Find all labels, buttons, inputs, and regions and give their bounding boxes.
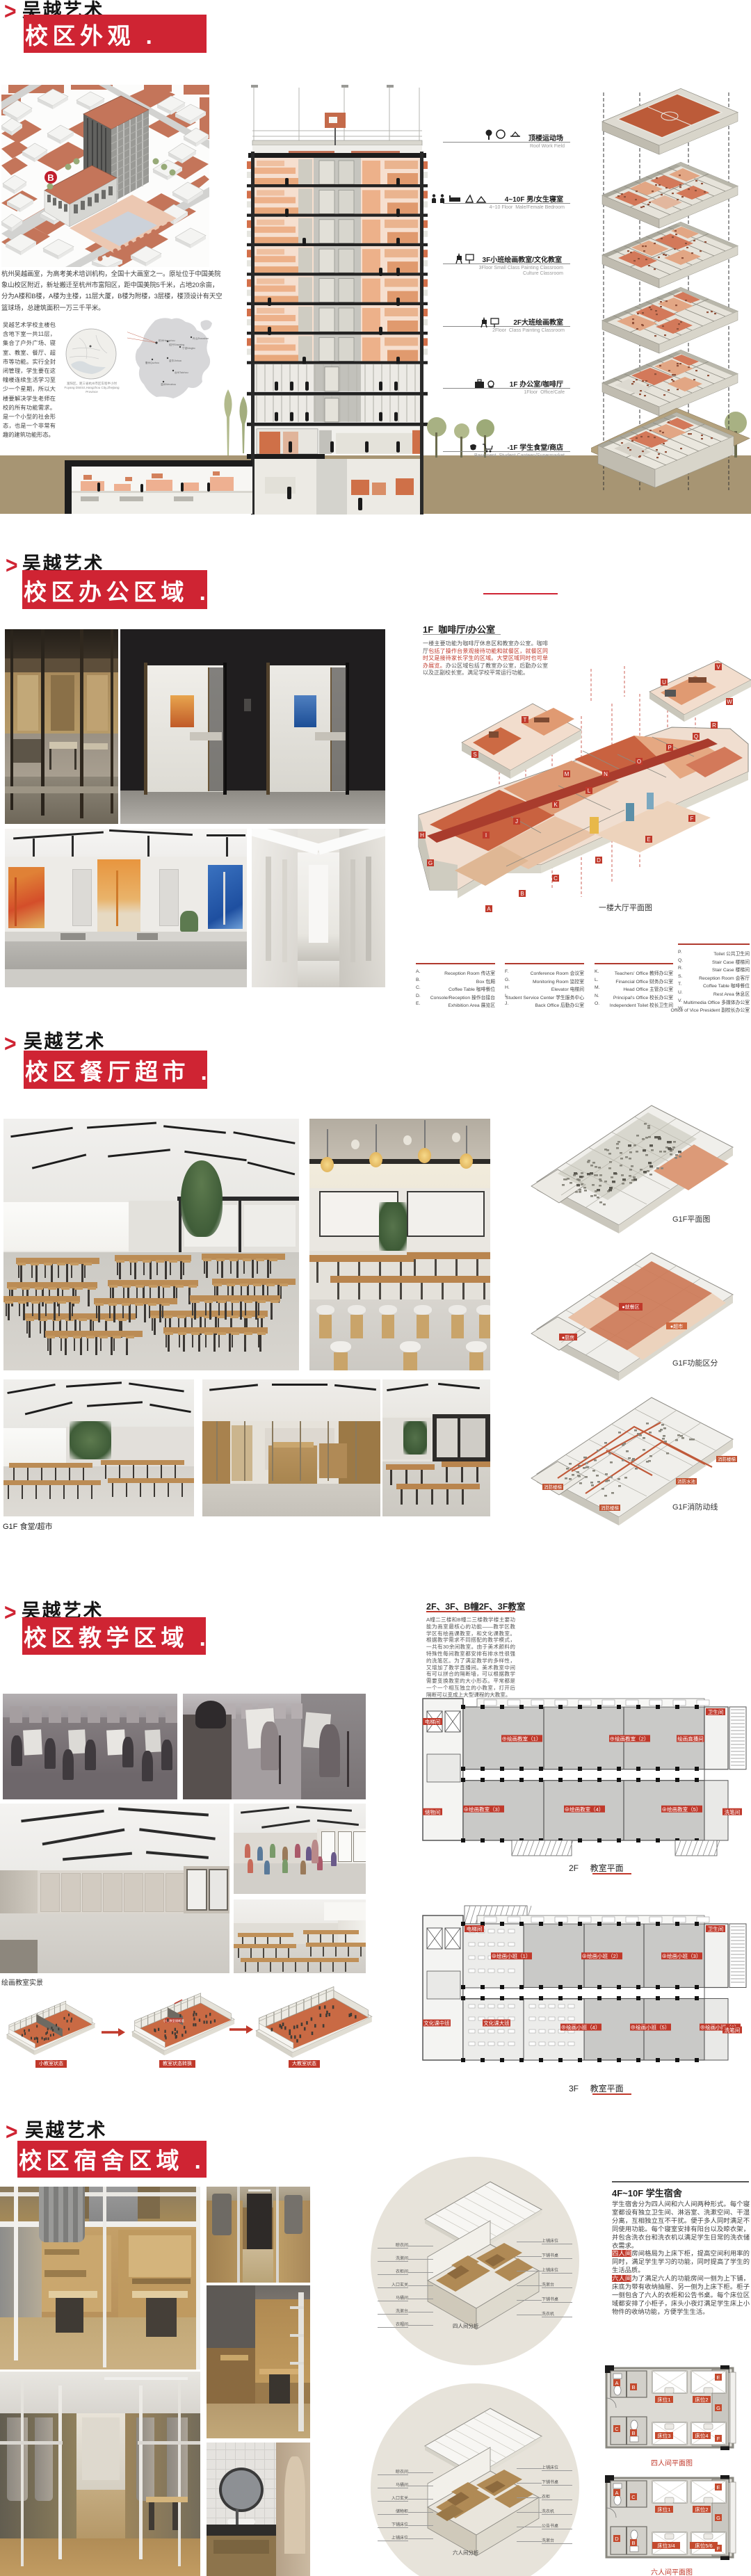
svg-text:文化课大班: 文化课大班 — [483, 2020, 510, 2027]
svg-text:F: F — [717, 2436, 720, 2442]
svg-text:金华Jinhua: 金华Jinhua — [169, 359, 181, 362]
svg-text:B: B — [47, 172, 54, 183]
svg-text:G: G — [716, 2405, 720, 2411]
svg-text:D: D — [615, 2536, 619, 2542]
svg-text:E: E — [716, 2374, 720, 2381]
svg-text:消防楼梯: 消防楼梯 — [544, 1484, 563, 1490]
svg-text:C: C — [554, 875, 558, 882]
svg-text:⊕绘画教室（3）: ⊕绘画教室（3） — [464, 1806, 503, 1813]
svg-text:C: C — [631, 2494, 636, 2500]
svg-text:床位3: 床位3 — [657, 2432, 670, 2439]
svg-text:N: N — [604, 771, 608, 777]
svg-text:⊕绘画小班（3）: ⊕绘画小班（3） — [662, 1952, 702, 1959]
svg-text:台州Taizhou: 台州Taizhou — [175, 371, 188, 374]
svg-text:⊕绘画教室（2）: ⊕绘画教室（2） — [610, 1735, 649, 1742]
svg-text:G: G — [716, 2515, 720, 2521]
svg-text:床位1: 床位1 — [657, 2396, 670, 2403]
svg-text:储物间: 储物间 — [425, 1808, 441, 1815]
svg-text:衢州Quzhou: 衢州Quzhou — [145, 361, 159, 364]
svg-text:T: T — [524, 717, 527, 723]
svg-text:⊕绘画教室（5）: ⊕绘画教室（5） — [662, 1806, 702, 1813]
svg-text:C: C — [615, 2426, 619, 2432]
svg-text:卫生间: 卫生间 — [708, 1925, 724, 1932]
svg-text:消防楼梯: 消防楼梯 — [601, 1505, 620, 1511]
svg-text:D: D — [597, 857, 601, 864]
svg-text:J: J — [515, 818, 518, 825]
svg-text:Q: Q — [694, 734, 698, 740]
svg-text:宁波Ningbo: 宁波Ningbo — [182, 346, 195, 350]
svg-text:卫生间: 卫生间 — [708, 1708, 724, 1715]
svg-text:W: W — [727, 699, 732, 705]
svg-text:文化课中班: 文化课中班 — [423, 2020, 450, 2027]
svg-text:⊕绘画教室（1）: ⊕绘画教室（1） — [502, 1735, 542, 1742]
svg-text:L: L — [588, 788, 591, 794]
svg-text:A: A — [487, 906, 491, 912]
svg-text:⊕绘画小班（2）: ⊕绘画小班（2） — [582, 1952, 622, 1959]
svg-text:E: E — [647, 836, 650, 843]
svg-text:S: S — [473, 752, 476, 758]
svg-text:床位4: 床位4 — [695, 2432, 708, 2439]
svg-text:消防水池: 消防水池 — [677, 1478, 696, 1484]
svg-text:B: B — [520, 891, 524, 897]
svg-text:M: M — [565, 771, 570, 777]
svg-text:R: R — [712, 722, 716, 729]
svg-text:B: B — [631, 2540, 635, 2546]
svg-text:洗笔间: 洗笔间 — [725, 1808, 741, 1815]
svg-text:F: F — [691, 816, 694, 822]
svg-text:洗笔间: 洗笔间 — [725, 2027, 741, 2034]
svg-text:H: H — [420, 832, 424, 839]
svg-text:E: E — [716, 2484, 720, 2490]
svg-text:G: G — [428, 860, 433, 866]
svg-text:消防楼梯: 消防楼梯 — [718, 1456, 736, 1462]
svg-text:绘画直播间: 绘画直播间 — [677, 1735, 704, 1742]
svg-text:O: O — [637, 759, 641, 765]
svg-text:床位5/6: 床位5/6 — [695, 2542, 712, 2549]
svg-text:床位2: 床位2 — [695, 2396, 708, 2403]
svg-text:P: P — [668, 745, 671, 751]
svg-text:小班教室隔断墙: 小班教室隔断墙 — [163, 2018, 185, 2023]
svg-text:杭州Hangzhou: 杭州Hangzhou — [159, 339, 175, 342]
svg-text:I: I — [485, 832, 487, 839]
svg-text:F: F — [717, 2545, 720, 2552]
svg-text:B: B — [631, 2384, 635, 2390]
svg-text:床位2: 床位2 — [695, 2506, 708, 2513]
svg-text:电梯间: 电梯间 — [467, 1925, 483, 1932]
svg-text:●就餐区: ●就餐区 — [622, 1304, 639, 1310]
svg-text:B: B — [631, 2430, 635, 2436]
svg-text:●超市: ●超市 — [670, 1323, 683, 1329]
svg-text:⊕绘画小班（1）: ⊕绘画小班（1） — [492, 1952, 531, 1959]
svg-text:V: V — [716, 664, 720, 670]
svg-text:床位1: 床位1 — [657, 2506, 670, 2513]
svg-text:床位3/4: 床位3/4 — [657, 2542, 675, 2549]
svg-text:A: A — [615, 2380, 618, 2386]
svg-text:⊕绘画小班（5）: ⊕绘画小班（5） — [631, 2024, 670, 2031]
svg-text:绍兴Shaoxing: 绍兴Shaoxing — [169, 343, 184, 346]
svg-text:舟山Zhoushan: 舟山Zhoushan — [193, 337, 209, 340]
svg-text:温州Wenzhou: 温州Wenzhou — [161, 382, 176, 386]
svg-text:A: A — [615, 2490, 618, 2496]
svg-text:电梯间: 电梯间 — [425, 1718, 441, 1725]
svg-text:●厨房: ●厨房 — [562, 1334, 574, 1340]
svg-text:K: K — [554, 802, 558, 808]
svg-text:⊕绘画教室（4）: ⊕绘画教室（4） — [565, 1806, 604, 1813]
svg-text:⊕绘画小班（4）: ⊕绘画小班（4） — [561, 2024, 601, 2031]
svg-text:U: U — [662, 679, 666, 686]
